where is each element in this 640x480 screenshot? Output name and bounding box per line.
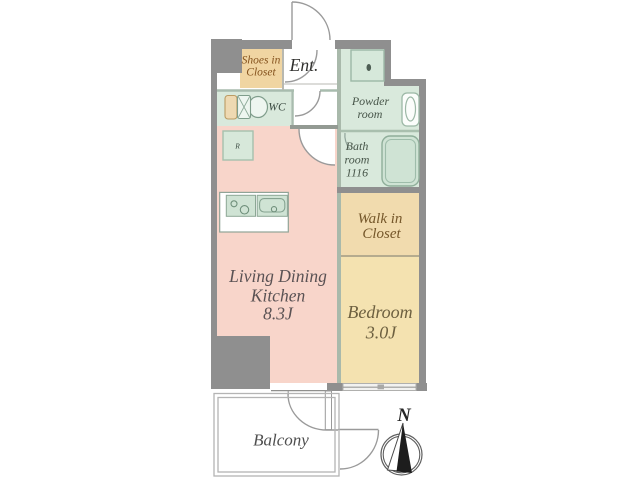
svg-text:R: R — [234, 142, 240, 151]
svg-text:Closet: Closet — [362, 226, 401, 242]
svg-text:1116: 1116 — [346, 166, 368, 180]
svg-text:Living Dining: Living Dining — [228, 266, 327, 286]
svg-text:3.0J: 3.0J — [365, 323, 398, 343]
svg-text:Bath: Bath — [346, 139, 369, 153]
svg-text:room: room — [345, 153, 370, 167]
svg-text:N: N — [396, 406, 411, 426]
svg-text:8.3J: 8.3J — [263, 304, 294, 324]
svg-text:Kitchen: Kitchen — [250, 286, 306, 306]
svg-text:Bedroom: Bedroom — [347, 302, 412, 322]
svg-text:room: room — [358, 107, 383, 121]
svg-text:Powder: Powder — [351, 94, 390, 108]
svg-text:Walk in: Walk in — [358, 211, 403, 227]
svg-text:Balcony: Balcony — [253, 431, 309, 450]
svg-text:Shoes in: Shoes in — [242, 55, 281, 67]
svg-text:Ent.: Ent. — [289, 55, 319, 75]
svg-text:WC: WC — [268, 102, 286, 114]
svg-text:Closet: Closet — [246, 67, 276, 79]
